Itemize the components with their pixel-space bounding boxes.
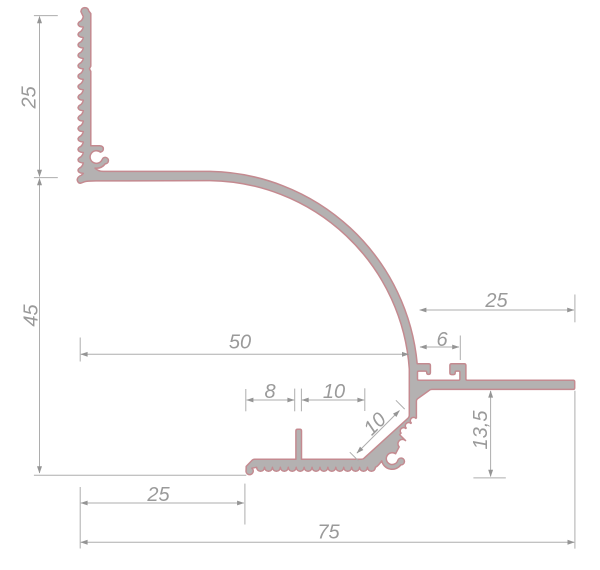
svg-text:25: 25 — [19, 85, 41, 109]
svg-text:10: 10 — [323, 381, 345, 403]
svg-text:25: 25 — [146, 484, 170, 506]
svg-text:13,5: 13,5 — [470, 410, 492, 450]
svg-text:10: 10 — [360, 409, 391, 440]
svg-text:8: 8 — [264, 381, 275, 403]
svg-text:25: 25 — [484, 290, 508, 312]
svg-text:6: 6 — [436, 329, 448, 351]
svg-text:50: 50 — [229, 332, 251, 354]
svg-text:75: 75 — [317, 522, 340, 544]
svg-text:45: 45 — [20, 304, 42, 327]
